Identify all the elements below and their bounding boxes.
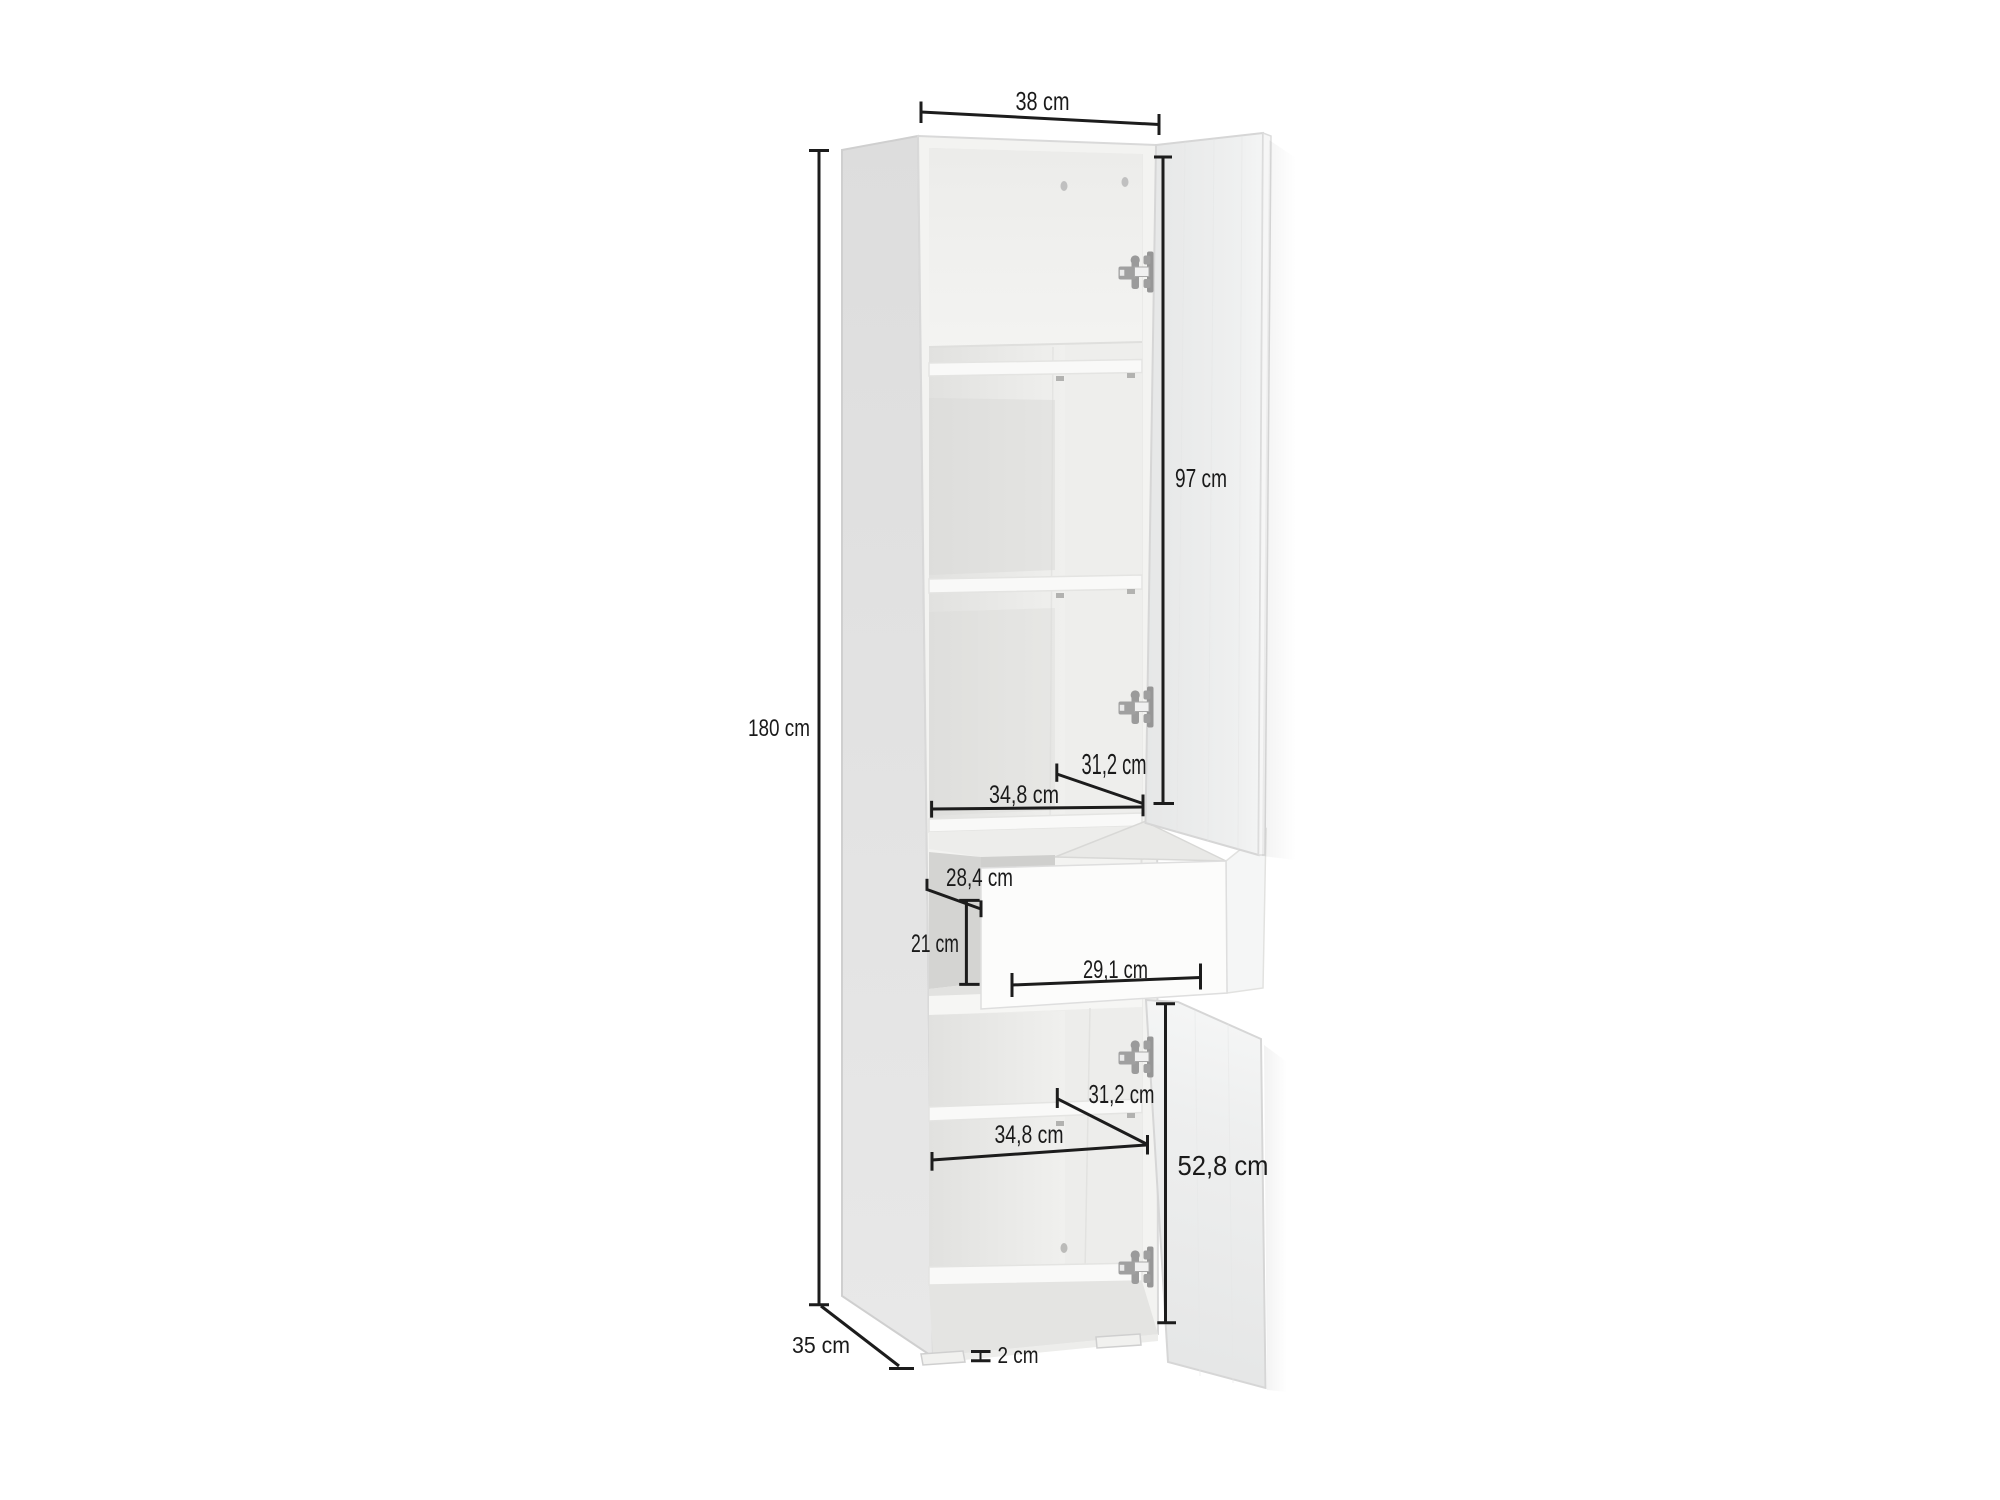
svg-text:34,8 cm: 34,8 cm	[995, 1121, 1064, 1149]
svg-text:21 cm: 21 cm	[911, 930, 959, 958]
svg-text:34,8 cm: 34,8 cm	[989, 781, 1059, 809]
svg-text:31,2 cm: 31,2 cm	[1089, 1079, 1155, 1109]
svg-text:31,2 cm: 31,2 cm	[1082, 749, 1147, 781]
svg-text:29,1 cm: 29,1 cm	[1083, 956, 1148, 984]
svg-text:35 cm: 35 cm	[792, 1332, 850, 1358]
svg-text:97 cm: 97 cm	[1175, 463, 1227, 493]
svg-text:52,8 cm: 52,8 cm	[1178, 1150, 1269, 1181]
svg-text:38 cm: 38 cm	[1016, 86, 1070, 116]
svg-text:180 cm: 180 cm	[748, 715, 810, 742]
svg-text:28,4 cm: 28,4 cm	[946, 864, 1013, 892]
svg-text:2 cm: 2 cm	[998, 1342, 1039, 1368]
